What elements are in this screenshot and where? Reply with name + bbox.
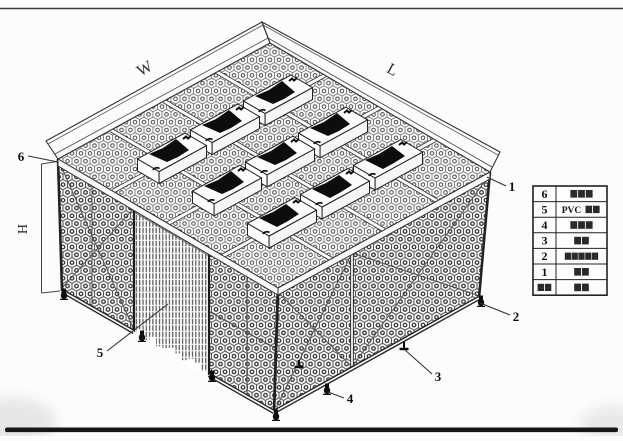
svg-text:6: 6 xyxy=(542,187,548,201)
svg-text:3: 3 xyxy=(435,369,442,384)
svg-text:4: 4 xyxy=(542,218,548,232)
svg-text:1: 1 xyxy=(542,265,548,279)
svg-text:3: 3 xyxy=(542,234,548,248)
svg-text:2: 2 xyxy=(542,249,548,263)
svg-text:1: 1 xyxy=(509,179,516,194)
svg-text:5: 5 xyxy=(542,202,548,216)
svg-text:6: 6 xyxy=(18,149,25,164)
svg-text:4: 4 xyxy=(347,391,354,406)
svg-text:5: 5 xyxy=(97,345,104,360)
svg-text:H: H xyxy=(16,224,31,234)
svg-text:PVC: PVC xyxy=(562,206,582,216)
svg-text:2: 2 xyxy=(513,309,520,324)
